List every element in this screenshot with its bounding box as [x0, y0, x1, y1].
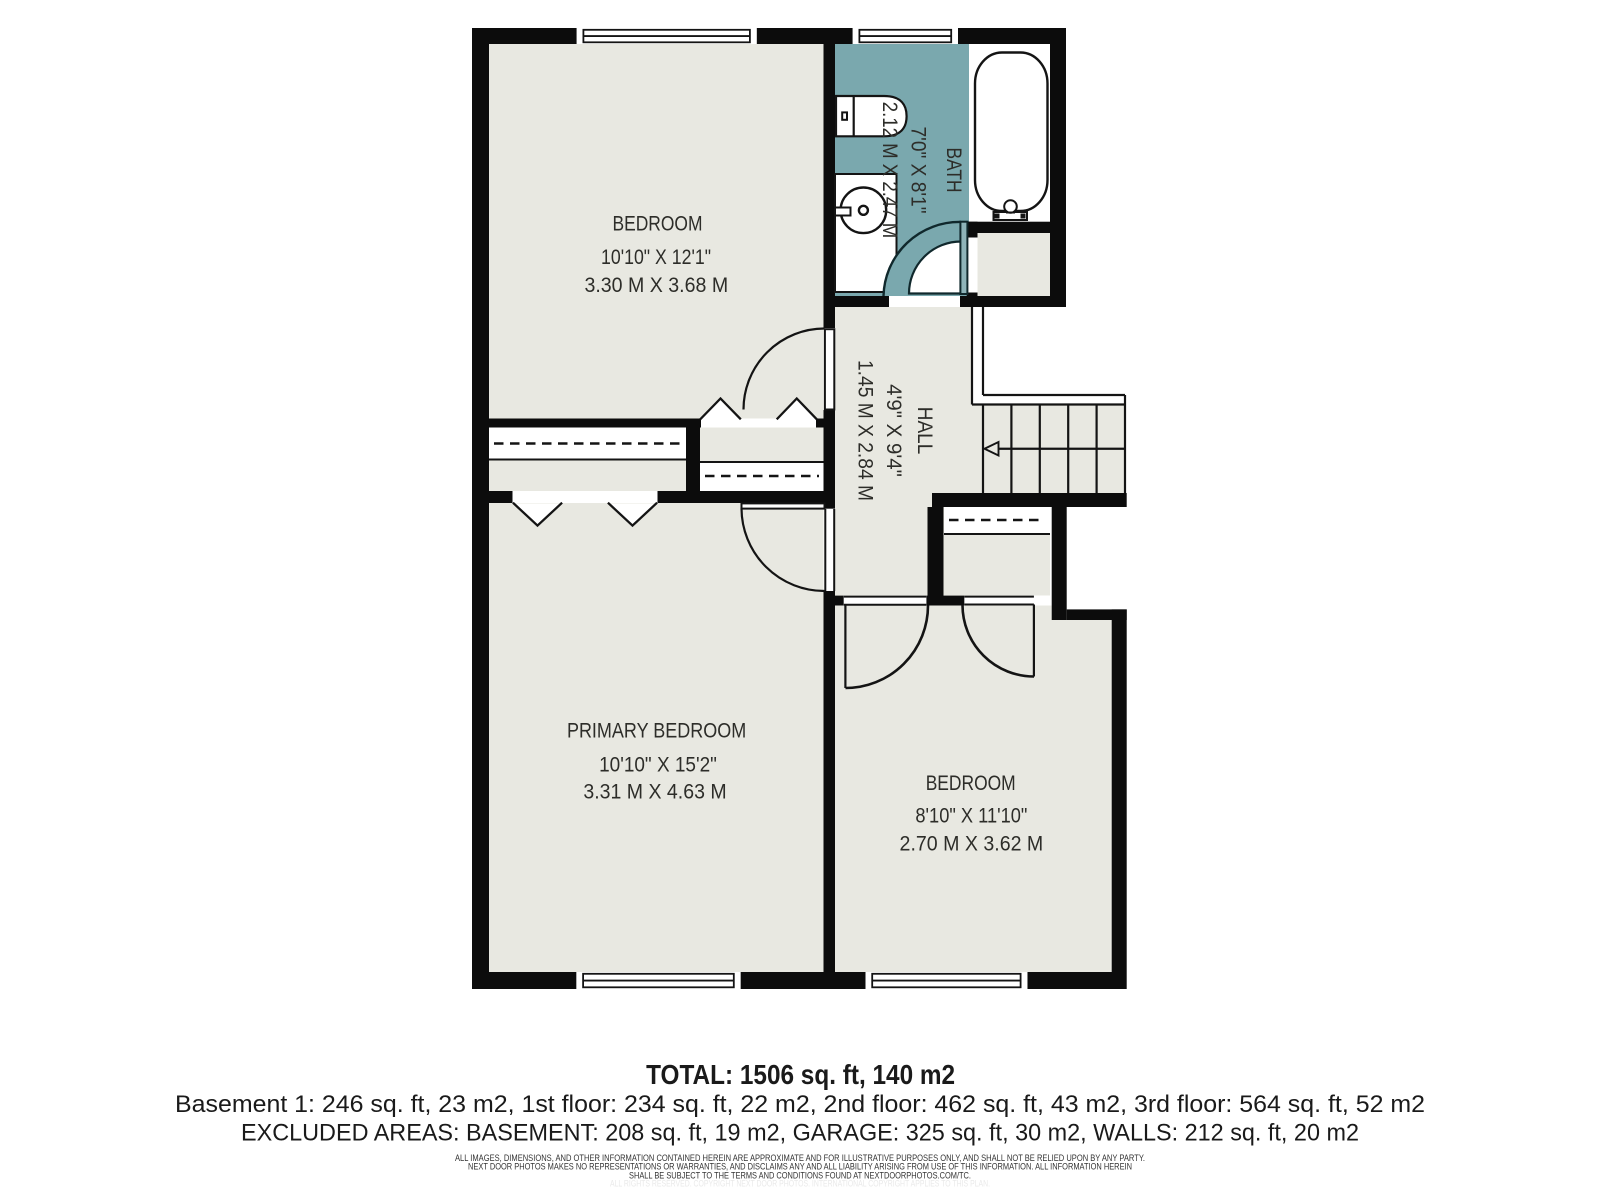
- svg-text:2.12 M X 2.47 M: 2.12 M X 2.47 M: [878, 102, 901, 239]
- svg-text:7'0" X 8'1": 7'0" X 8'1": [907, 127, 930, 214]
- svg-text:3.31 M X 4.63 M: 3.31 M X 4.63 M: [583, 780, 726, 803]
- svg-text:BEDROOM: BEDROOM: [613, 213, 703, 236]
- svg-text:4'9" X 9'4": 4'9" X 9'4": [882, 384, 905, 477]
- svg-text:3.30 M X 3.68 M: 3.30 M X 3.68 M: [584, 274, 728, 297]
- svg-text:BEDROOM: BEDROOM: [926, 772, 1016, 795]
- svg-text:8'10" X 11'10": 8'10" X 11'10": [915, 804, 1027, 827]
- svg-text:PRIMARY BEDROOM: PRIMARY BEDROOM: [567, 720, 746, 743]
- svg-text:BATH: BATH: [942, 148, 965, 193]
- svg-text:10'10" X 12'1": 10'10" X 12'1": [601, 246, 711, 269]
- svg-text:HALL: HALL: [913, 407, 936, 455]
- svg-text:1.45 M X 2.84 M: 1.45 M X 2.84 M: [854, 360, 877, 501]
- svg-text:ALL RIGHTS RESERVED. COPYRIGHT: ALL RIGHTS RESERVED. COPYRIGHT NEXT DOOR…: [610, 1179, 990, 1190]
- svg-text:EXCLUDED AREAS: BASEMENT: 208: EXCLUDED AREAS: BASEMENT: 208 sq. ft, 19…: [241, 1120, 1359, 1147]
- svg-text:TOTAL: 1506 sq. ft, 140 m2: TOTAL: 1506 sq. ft, 140 m2: [646, 1059, 955, 1090]
- svg-text:Basement 1: 246 sq. ft, 23 m2,: Basement 1: 246 sq. ft, 23 m2, 1st floor…: [175, 1091, 1425, 1118]
- svg-text:10'10" X 15'2": 10'10" X 15'2": [599, 753, 717, 776]
- svg-text:2.70 M X 3.62 M: 2.70 M X 3.62 M: [900, 833, 1044, 856]
